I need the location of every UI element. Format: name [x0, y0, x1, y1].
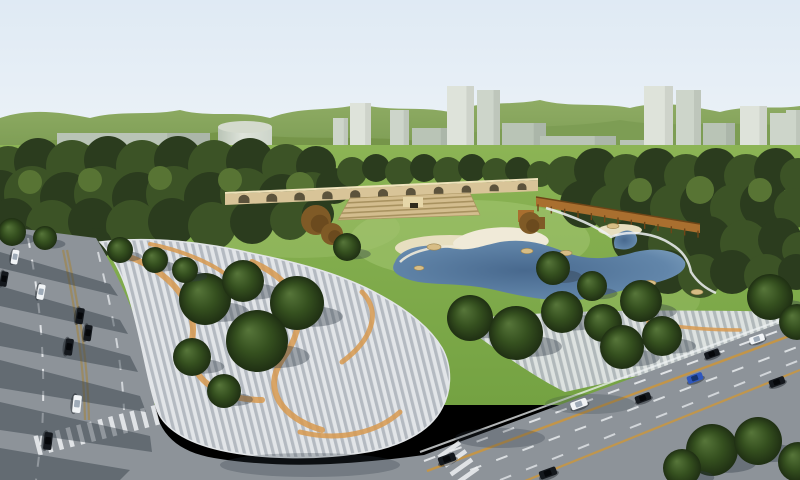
pavilion-door [410, 203, 418, 208]
rust-tree-shade [526, 219, 539, 232]
forest-puff [628, 178, 652, 202]
forest-puff [78, 168, 102, 192]
rock [607, 223, 619, 228]
forest-puff [385, 157, 415, 187]
tree-canopy [333, 233, 361, 261]
tree-canopy [107, 237, 133, 263]
forest-puff [686, 176, 714, 204]
tree-canopy [142, 247, 168, 273]
tree-canopy [172, 257, 198, 283]
tree-canopy [222, 260, 264, 302]
car-cabin [45, 437, 51, 445]
car-cabin [85, 329, 91, 336]
rock [427, 244, 441, 250]
tree-canopy [541, 291, 583, 333]
tree-canopy [734, 417, 782, 465]
tree-canopy [489, 306, 543, 360]
tree-canopy [447, 295, 493, 341]
tree-canopy [207, 374, 241, 408]
car-cabin [74, 400, 80, 408]
tree-canopy [642, 316, 682, 356]
tree-canopy [33, 226, 57, 250]
tree-canopy [600, 325, 644, 369]
tree-canopy [577, 271, 607, 301]
car-cabin [66, 343, 72, 351]
forest-puff [748, 178, 772, 202]
forest-puff [458, 154, 486, 182]
forest-puff [230, 200, 274, 244]
forest-puff [337, 157, 367, 187]
rock [691, 289, 703, 294]
forest-puff [218, 168, 242, 192]
render-stage [0, 0, 800, 480]
tree-canopy [536, 251, 570, 285]
forest-puff [148, 166, 172, 190]
tree-canopy [173, 338, 211, 376]
rock [521, 248, 533, 253]
cylinder-building-roof [218, 121, 272, 133]
tree-canopy [226, 310, 288, 372]
car-cabin [77, 312, 83, 319]
rock [414, 266, 424, 271]
forest-puff [18, 170, 42, 194]
tree-canopy [620, 280, 662, 322]
park-aerial-render [0, 0, 800, 480]
